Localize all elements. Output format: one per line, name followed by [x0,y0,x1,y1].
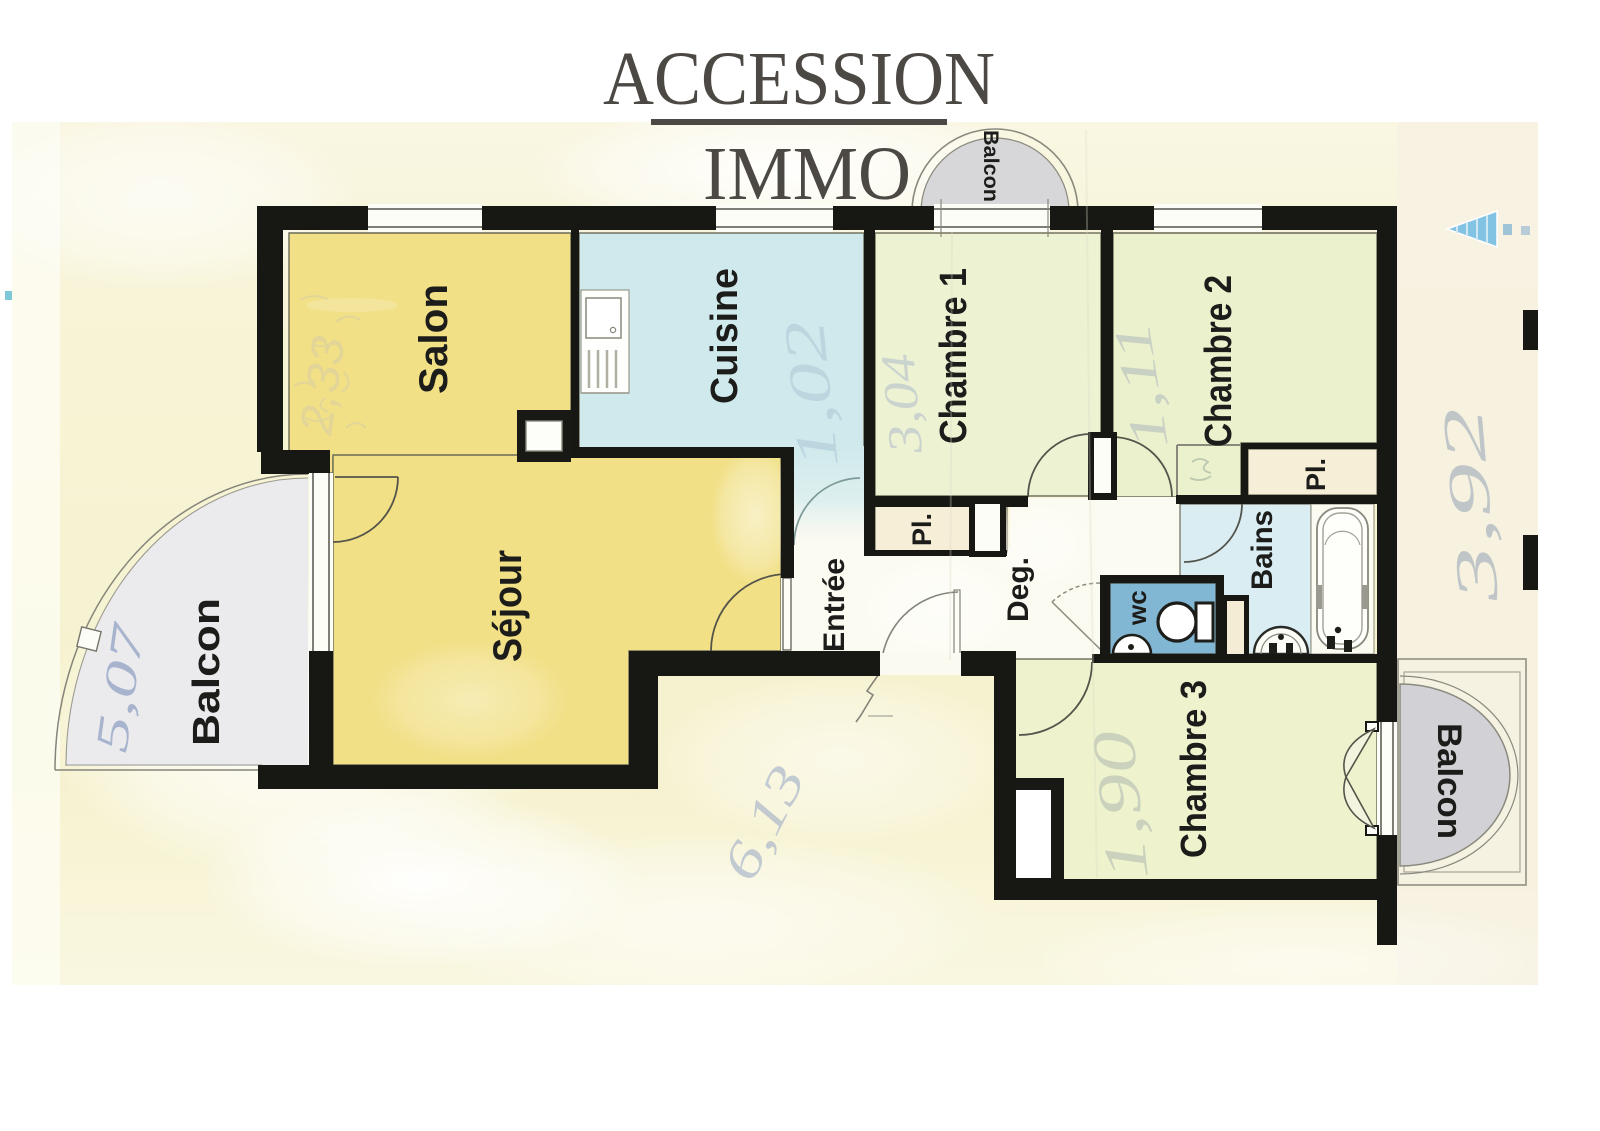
svg-text:Chambre 1: Chambre 1 [933,268,975,444]
svg-text:Chambre 3: Chambre 3 [1173,680,1214,858]
svg-text:3,04: 3,04 [871,351,933,456]
svg-text:Salon: Salon [412,284,456,394]
svg-text:Cuisine: Cuisine [704,268,746,404]
svg-text:Pl.: Pl. [907,513,937,546]
svg-text:Bains: Bains [1246,510,1279,590]
svg-text:Balcon: Balcon [186,598,228,746]
svg-text:Deg.: Deg. [1002,557,1035,622]
svg-text:wc: wc [1122,590,1152,626]
svg-text:IMMO: IMMO [703,132,911,216]
svg-text:Balcon: Balcon [1430,723,1468,839]
svg-text:Chambre 2: Chambre 2 [1198,275,1240,447]
svg-text:Séjour: Séjour [486,550,530,662]
svg-text:Balcon: Balcon [979,130,1002,202]
svg-text:Pl.: Pl. [1301,458,1331,491]
svg-text:ACCESSION: ACCESSION [603,37,995,121]
svg-text:Entrée: Entrée [818,558,851,652]
